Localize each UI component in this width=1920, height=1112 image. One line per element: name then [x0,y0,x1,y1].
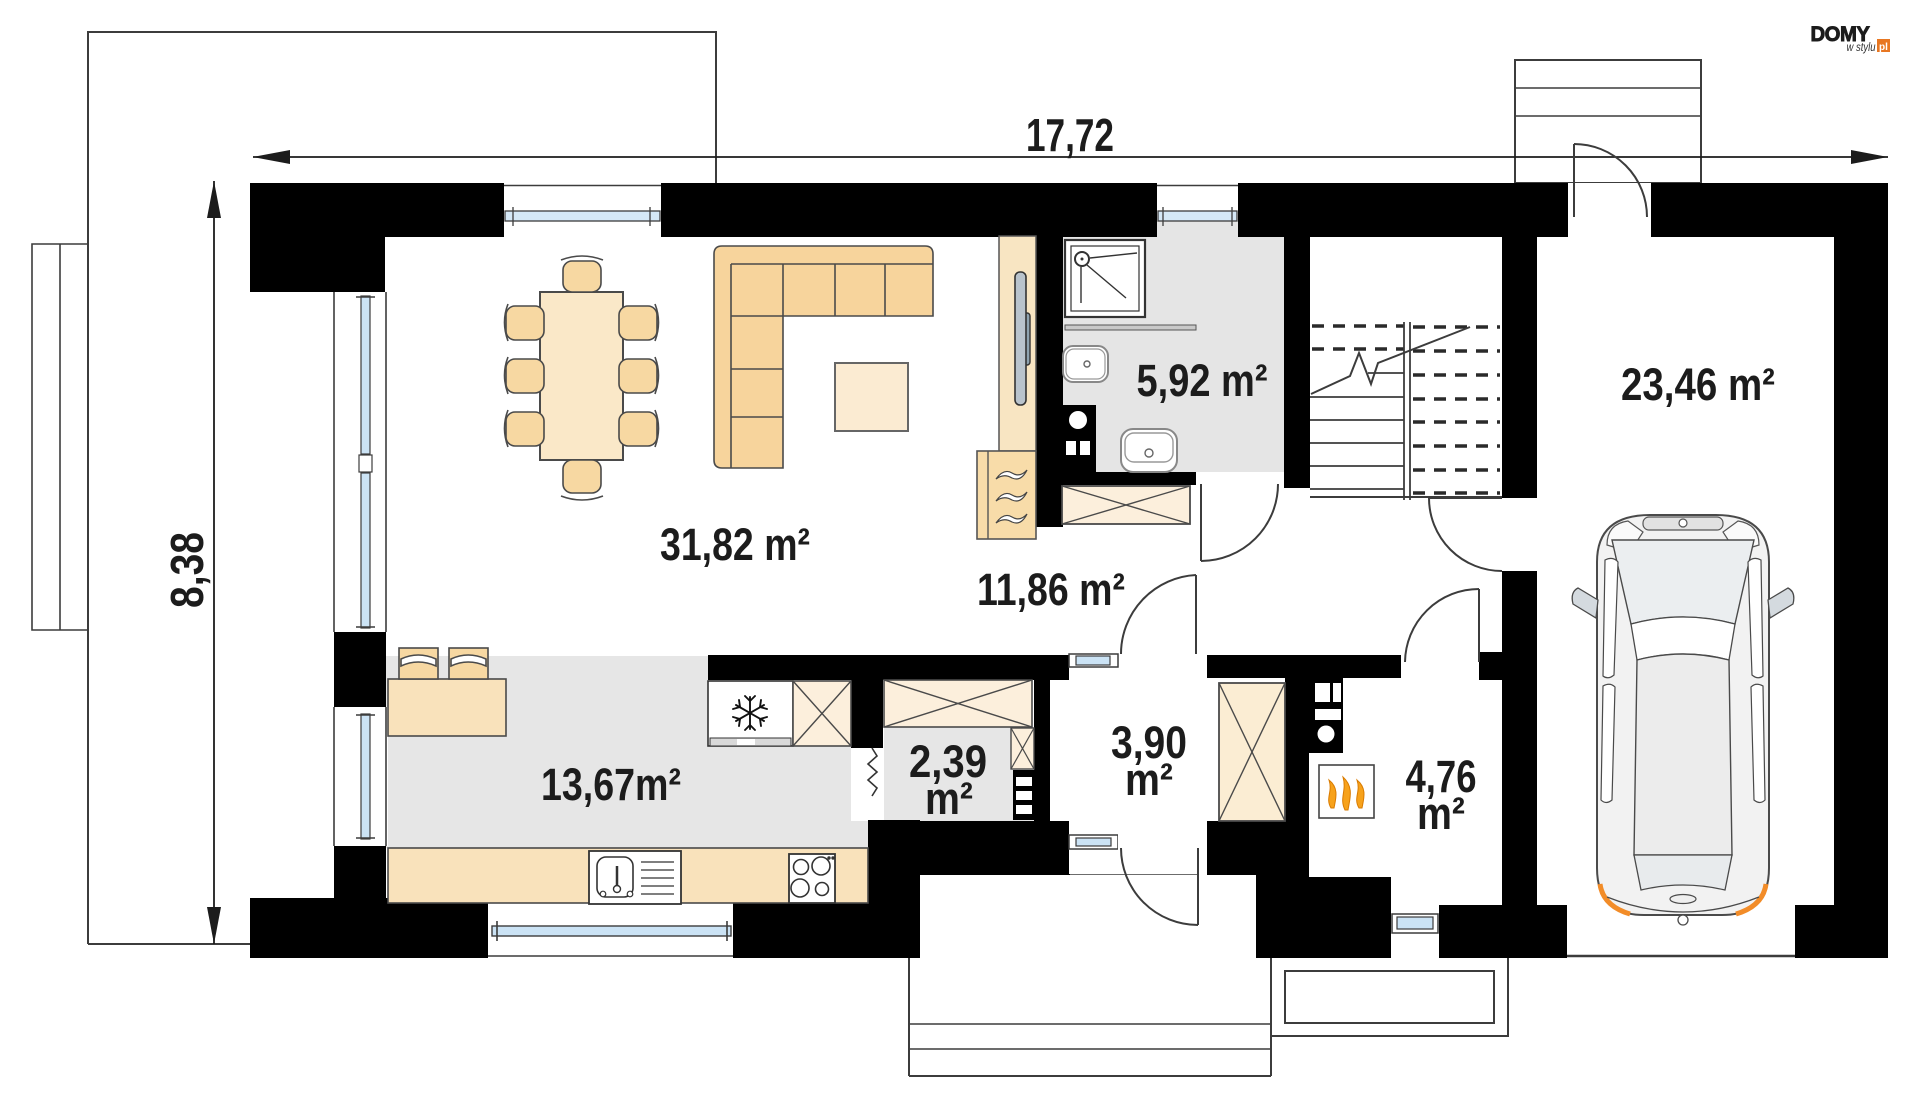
svg-text:pl: pl [1879,42,1888,53]
svg-text:m²: m² [1125,754,1173,805]
svg-text:5,92 m²: 5,92 m² [1137,355,1268,406]
svg-text:w stylu: w stylu [1847,40,1876,54]
svg-text:m²: m² [1417,788,1465,839]
svg-text:11,86 m²: 11,86 m² [977,564,1125,615]
svg-text:8,38: 8,38 [161,532,213,608]
svg-text:13,67m²: 13,67m² [541,759,681,810]
svg-text:23,46 m²: 23,46 m² [1621,359,1775,410]
svg-text:31,82 m²: 31,82 m² [660,519,810,570]
svg-text:17,72: 17,72 [1026,109,1114,161]
svg-text:m²: m² [925,773,973,824]
